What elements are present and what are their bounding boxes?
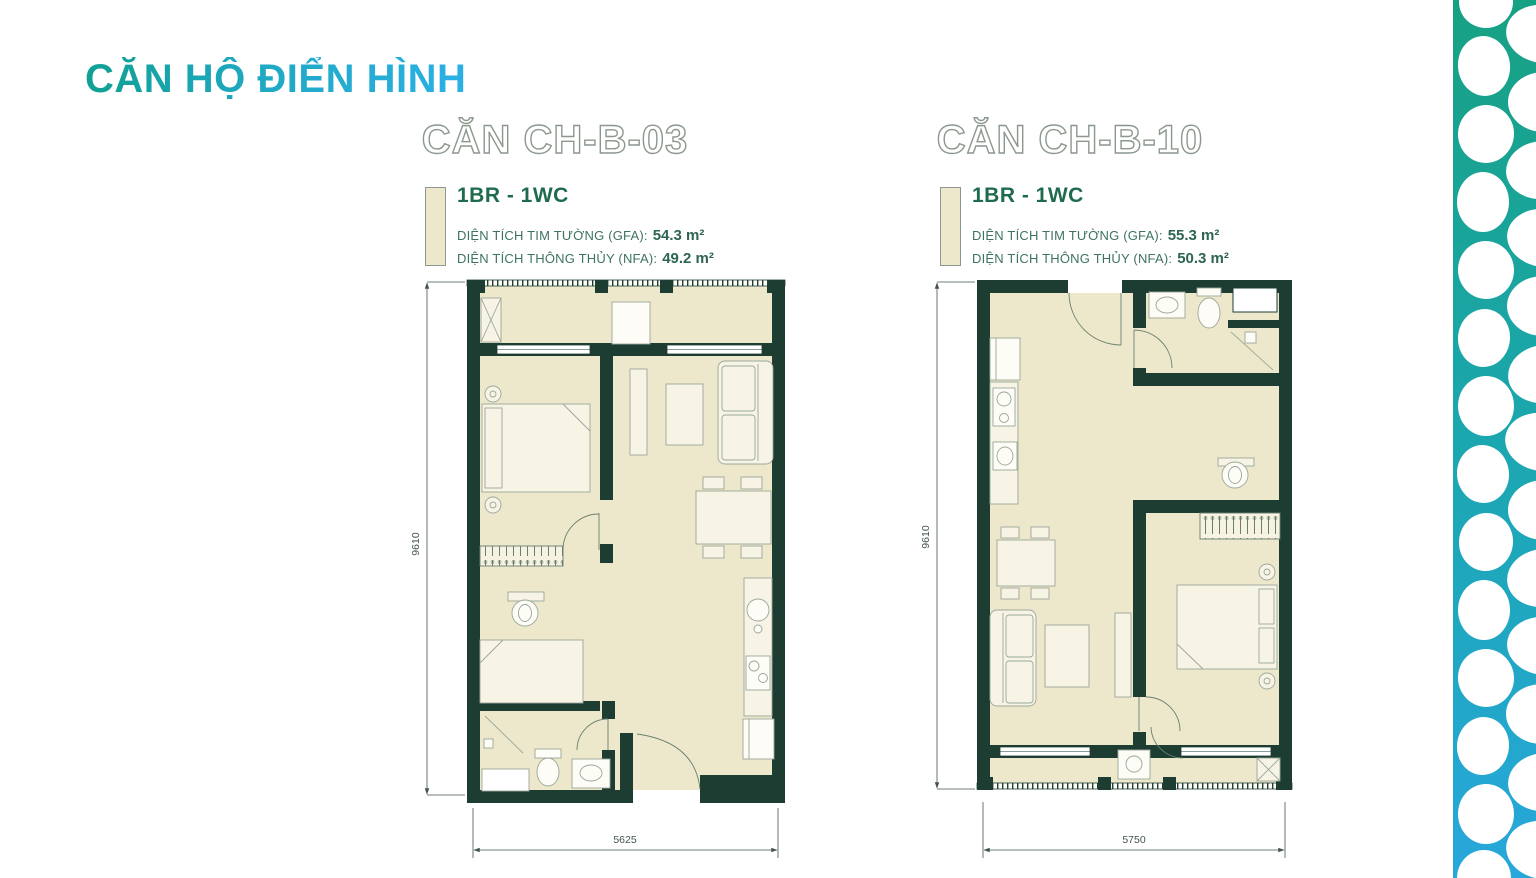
- unit1-nfa-line: DIỆN TÍCH THÔNG THỦY (NFA):49.2 m²: [457, 250, 714, 268]
- single-bed-icon: [480, 640, 583, 703]
- page-title: CĂN HỘ ĐIỂN HÌNH: [85, 57, 466, 102]
- decor-pebble-pattern: [1440, 0, 1536, 878]
- unit2-nfa-value: 50.3 m²: [1177, 250, 1229, 267]
- kitchen-counter-icon: [990, 382, 1018, 504]
- nightstand-icon: [485, 386, 501, 402]
- nightstand-icon: [1259, 564, 1275, 580]
- unit2-nfa-label: DIỆN TÍCH THÔNG THỦY (NFA):: [972, 251, 1172, 266]
- unit1-nfa-value: 49.2 m²: [662, 250, 714, 267]
- fridge-icon: [743, 719, 774, 759]
- sofa-icon: [718, 361, 773, 464]
- dim-width-label: 5750: [1122, 834, 1146, 846]
- balcony-cabinet-icon: [481, 298, 501, 342]
- tv-cabinet-icon: [1115, 613, 1131, 697]
- dim-height-label: 9610: [410, 532, 422, 556]
- bath-floor: [482, 769, 529, 791]
- tv-cabinet-icon: [630, 369, 647, 455]
- entry-opening: [1068, 280, 1122, 293]
- unit1-header: CĂN CH-B-03: [400, 118, 710, 163]
- entry-opening: [633, 790, 700, 803]
- hall-door-leaf: [612, 302, 650, 344]
- dim-height-label: 9610: [920, 525, 932, 549]
- double-bed-icon: [1177, 585, 1277, 669]
- nightstand-icon: [485, 497, 501, 513]
- unit1-nfa-label: DIỆN TÍCH THÔNG THỦY (NFA):: [457, 251, 657, 266]
- fridge-icon: [990, 338, 1020, 380]
- shaft: [1233, 288, 1277, 312]
- nightstand-icon: [1259, 673, 1275, 689]
- unit2-type-label: 1BR - 1WC: [972, 184, 1084, 208]
- unit1-gfa-line: DIỆN TÍCH TIM TƯỜNG (GFA):54.3 m²: [457, 227, 704, 245]
- unit2-gfa-label: DIỆN TÍCH TIM TƯỜNG (GFA):: [972, 228, 1163, 243]
- unit2-floor-swatch: [940, 187, 961, 266]
- dim-width-label: 5625: [613, 834, 637, 846]
- balcony-railing: [467, 280, 785, 286]
- sofa-icon: [990, 610, 1036, 706]
- balcony-railing: [977, 783, 1292, 789]
- floor-plan-ch-b-03: 9610 5625: [405, 272, 805, 872]
- toilet-icon: [1197, 288, 1221, 328]
- unit2-gfa-value: 55.3 m²: [1168, 227, 1220, 244]
- balcony-cabinet-icon: [1257, 758, 1280, 781]
- wardrobe-icon: [480, 546, 563, 566]
- unit1-floor-swatch: [425, 187, 446, 266]
- double-bed-icon: [482, 404, 590, 492]
- coffee-table-icon: [666, 384, 703, 445]
- unit2-header: CĂN CH-B-10: [915, 118, 1225, 163]
- unit2-nfa-line: DIỆN TÍCH THÔNG THỦY (NFA):50.3 m²: [972, 250, 1229, 268]
- floor-plan-ch-b-10: 9610 5750: [915, 272, 1315, 872]
- wardrobe-icon: [1200, 513, 1280, 539]
- bath-sink-icon: [572, 759, 610, 788]
- unit1-gfa-value: 54.3 m²: [653, 227, 705, 244]
- bath-sink-icon: [1149, 292, 1185, 318]
- kitchen-counter-icon: [744, 578, 772, 716]
- toilet-icon: [535, 749, 561, 786]
- coffee-table-icon: [1045, 625, 1089, 687]
- unit1-type-label: 1BR - 1WC: [457, 184, 569, 208]
- unit1-gfa-label: DIỆN TÍCH TIM TƯỜNG (GFA):: [457, 228, 648, 243]
- unit2-gfa-line: DIỆN TÍCH TIM TƯỜNG (GFA):55.3 m²: [972, 227, 1219, 245]
- washer-icon: [1118, 750, 1150, 779]
